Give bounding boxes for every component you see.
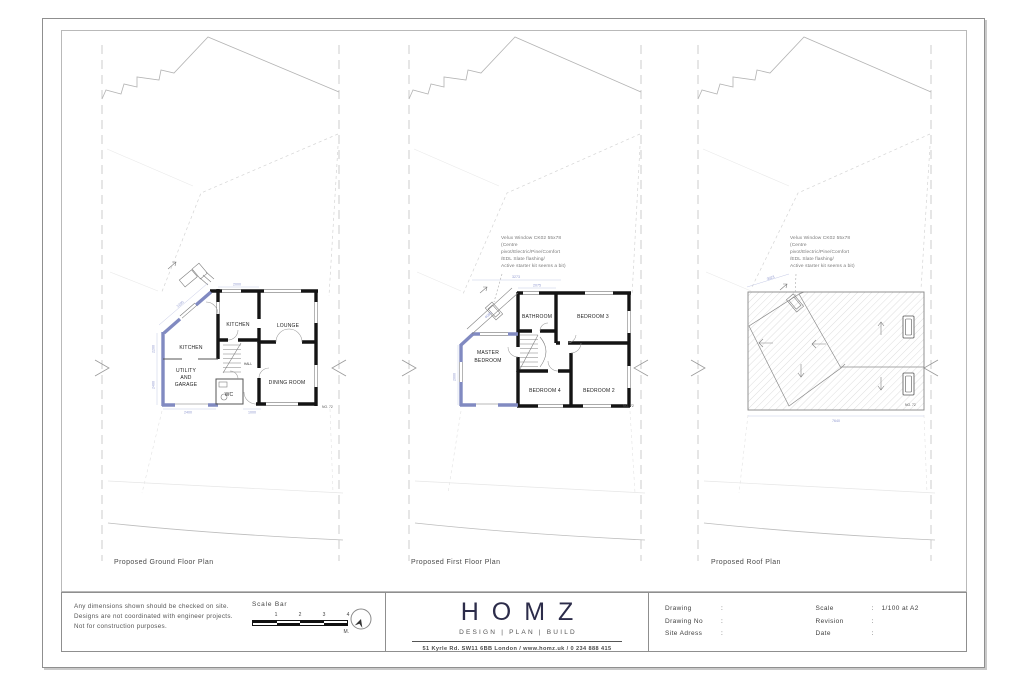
scale-bar: Scale Bar 1 2 3 4 M. — [252, 601, 352, 626]
dim-label: 2200 — [152, 345, 156, 353]
scale-bar-ticks: 1 2 3 4 — [252, 612, 352, 619]
title-block-brand-section: HOMZ DESIGN | PLAN | BUILD 51 Kyrle Rd. … — [386, 593, 649, 651]
house-number: NO. 72 — [322, 405, 333, 409]
scale-bar-label: Scale Bar — [252, 601, 352, 608]
annotation-line: (Centre — [501, 243, 601, 250]
staircase — [223, 343, 241, 373]
roof-window — [903, 373, 914, 395]
room-label-utility: UTILITY — [176, 368, 196, 374]
room-label-bedroom4: BEDROOM 4 — [529, 388, 561, 394]
dim-label: 3273 — [512, 275, 520, 279]
room-label-kitchen-left: KITCHEN — [179, 345, 203, 351]
info-label: Site Adress — [665, 628, 721, 641]
room-label-bathroom: BATHROOM — [522, 314, 552, 320]
roof-plan: 3023 7640 NO. 72 — [747, 274, 924, 423]
room-label-master: BEDROOM — [474, 358, 501, 364]
brand-logo: HOMZ — [386, 599, 648, 627]
north-arrow-icon — [349, 607, 373, 636]
info-row-scale: Scale : 1/100 at A2 — [816, 603, 967, 616]
info-label: Scale — [816, 603, 872, 616]
info-label: Drawing No — [665, 616, 721, 629]
info-colon: : — [872, 628, 882, 641]
room-label-hall: HALL — [244, 362, 252, 366]
dim-label: 2400 — [152, 381, 156, 389]
dim-label: 3023 — [766, 275, 775, 281]
dimensions: 2200 2200 2400 2400 2000 1000 — [152, 283, 262, 415]
scale-tick: 1 — [275, 612, 278, 618]
dim-label: 2400 — [184, 411, 192, 415]
info-row-site-address: Site Adress : — [665, 628, 816, 641]
info-colon: : — [721, 616, 731, 629]
room-label-wc: WC — [225, 392, 234, 398]
plan-title-ground: Proposed Ground Floor Plan — [114, 559, 214, 566]
plan-title-roof: Proposed Roof Plan — [711, 559, 781, 566]
scale-tick: 3 — [323, 612, 326, 618]
brand-divider — [412, 641, 622, 642]
roof-panel: 3023 7640 NO. 72 — [659, 31, 965, 592]
drawing-area: 2200 2200 2400 2400 2000 1000 KITCHEN LO… — [61, 30, 967, 592]
roof-window — [903, 316, 914, 338]
site-outline-1 — [95, 37, 346, 561]
info-label: Date — [816, 628, 872, 641]
info-row-drawing: Drawing : — [665, 603, 816, 616]
info-column-right: Scale : 1/100 at A2 Revision : Date : — [816, 603, 967, 641]
roof-slope-band — [467, 287, 518, 334]
room-label-bedroom3: BEDROOM 3 — [577, 314, 609, 320]
info-label: Drawing — [665, 603, 721, 616]
room-label-lounge: LOUNGE — [277, 323, 300, 329]
info-column-left: Drawing : Drawing No : Site Adress : — [665, 603, 816, 641]
info-row-date: Date : — [816, 628, 967, 641]
room-label-dining: DINING ROOM — [269, 380, 306, 386]
velux-annotation-first-floor: Velux Window CK02 55x78 (Centre pivot/El… — [501, 236, 601, 271]
ground-floor-panel: 2200 2200 2400 2400 2000 1000 KITCHEN LO… — [62, 31, 368, 592]
site-outline-2 — [402, 37, 648, 561]
room-label-utility: AND — [180, 375, 191, 381]
annotation-line: Velux Window CK02 55x78 — [790, 236, 890, 243]
house-number: NO. 72 — [905, 403, 916, 407]
annotation-line: Active starter kit seems a bit) — [501, 264, 601, 271]
porch-detail — [168, 262, 214, 287]
info-colon: : — [721, 603, 731, 616]
dim-label: 1000 — [248, 411, 256, 415]
annotation-line: /EDL Slate flashing/ — [790, 257, 890, 264]
annotation-line: Velux Window CK02 55x78 — [501, 236, 601, 243]
scale-bar-graphic: M. — [252, 620, 348, 626]
first-floor-plan: 3273 4080 2075 2000 BATHROOM BEDROOM 3 M… — [453, 274, 634, 408]
room-label-master: MASTER — [477, 350, 499, 356]
velux-annotation-roof: Velux Window CK02 55x78 (Centre pivot/El… — [790, 236, 890, 271]
house-number: NO. 72 — [623, 404, 634, 408]
info-colon: : — [721, 628, 731, 641]
annotation-line: Active starter kit seems a bit) — [790, 264, 890, 271]
drawing-sheet: 2200 2200 2400 2400 2000 1000 KITCHEN LO… — [0, 0, 1024, 683]
dim-label: 2075 — [533, 284, 541, 288]
ground-floor-plan: 2200 2200 2400 2400 2000 1000 KITCHEN LO… — [152, 262, 333, 415]
room-label-bedroom2: BEDROOM 2 — [583, 388, 615, 394]
info-colon: : — [872, 603, 882, 616]
info-value: 1/100 at A2 — [882, 603, 919, 616]
room-label-kitchen: KITCHEN — [226, 322, 250, 328]
brand-address: 51 Kyrle Rd. SW11 6BB London / www.homz.… — [386, 646, 648, 652]
scale-tick: 2 — [299, 612, 302, 618]
annotation-line: pivot/Electric/Pine/Comfort — [790, 250, 890, 257]
brand-tagline: DESIGN | PLAN | BUILD — [386, 629, 648, 636]
first-floor-panel: 3273 4080 2075 2000 BATHROOM BEDROOM 3 M… — [368, 31, 674, 592]
info-row-drawing-no: Drawing No : — [665, 616, 816, 629]
dim-label: 7640 — [832, 419, 840, 423]
staircase — [520, 335, 546, 369]
annotation-line: /EDL Slate flashing/ — [501, 257, 601, 264]
info-row-revision: Revision : — [816, 616, 967, 629]
plan-title-first: Proposed First Floor Plan — [411, 559, 500, 566]
dim-label: 2200 — [176, 300, 185, 308]
dim-label: 2000 — [453, 373, 457, 381]
annotation-line: (Centre — [790, 243, 890, 250]
dim-label: 2000 — [233, 283, 241, 287]
annotation-line: pivot/Electric/Pine/Comfort — [501, 250, 601, 257]
title-block-info-section: Drawing : Drawing No : Site Adress : — [649, 593, 966, 651]
title-block-notes-section: Any dimensions shown should be checked o… — [62, 593, 386, 651]
info-label: Revision — [816, 616, 872, 629]
info-colon: : — [872, 616, 882, 629]
room-label-utility: GARAGE — [175, 382, 198, 388]
title-block: Any dimensions shown should be checked o… — [61, 592, 967, 652]
